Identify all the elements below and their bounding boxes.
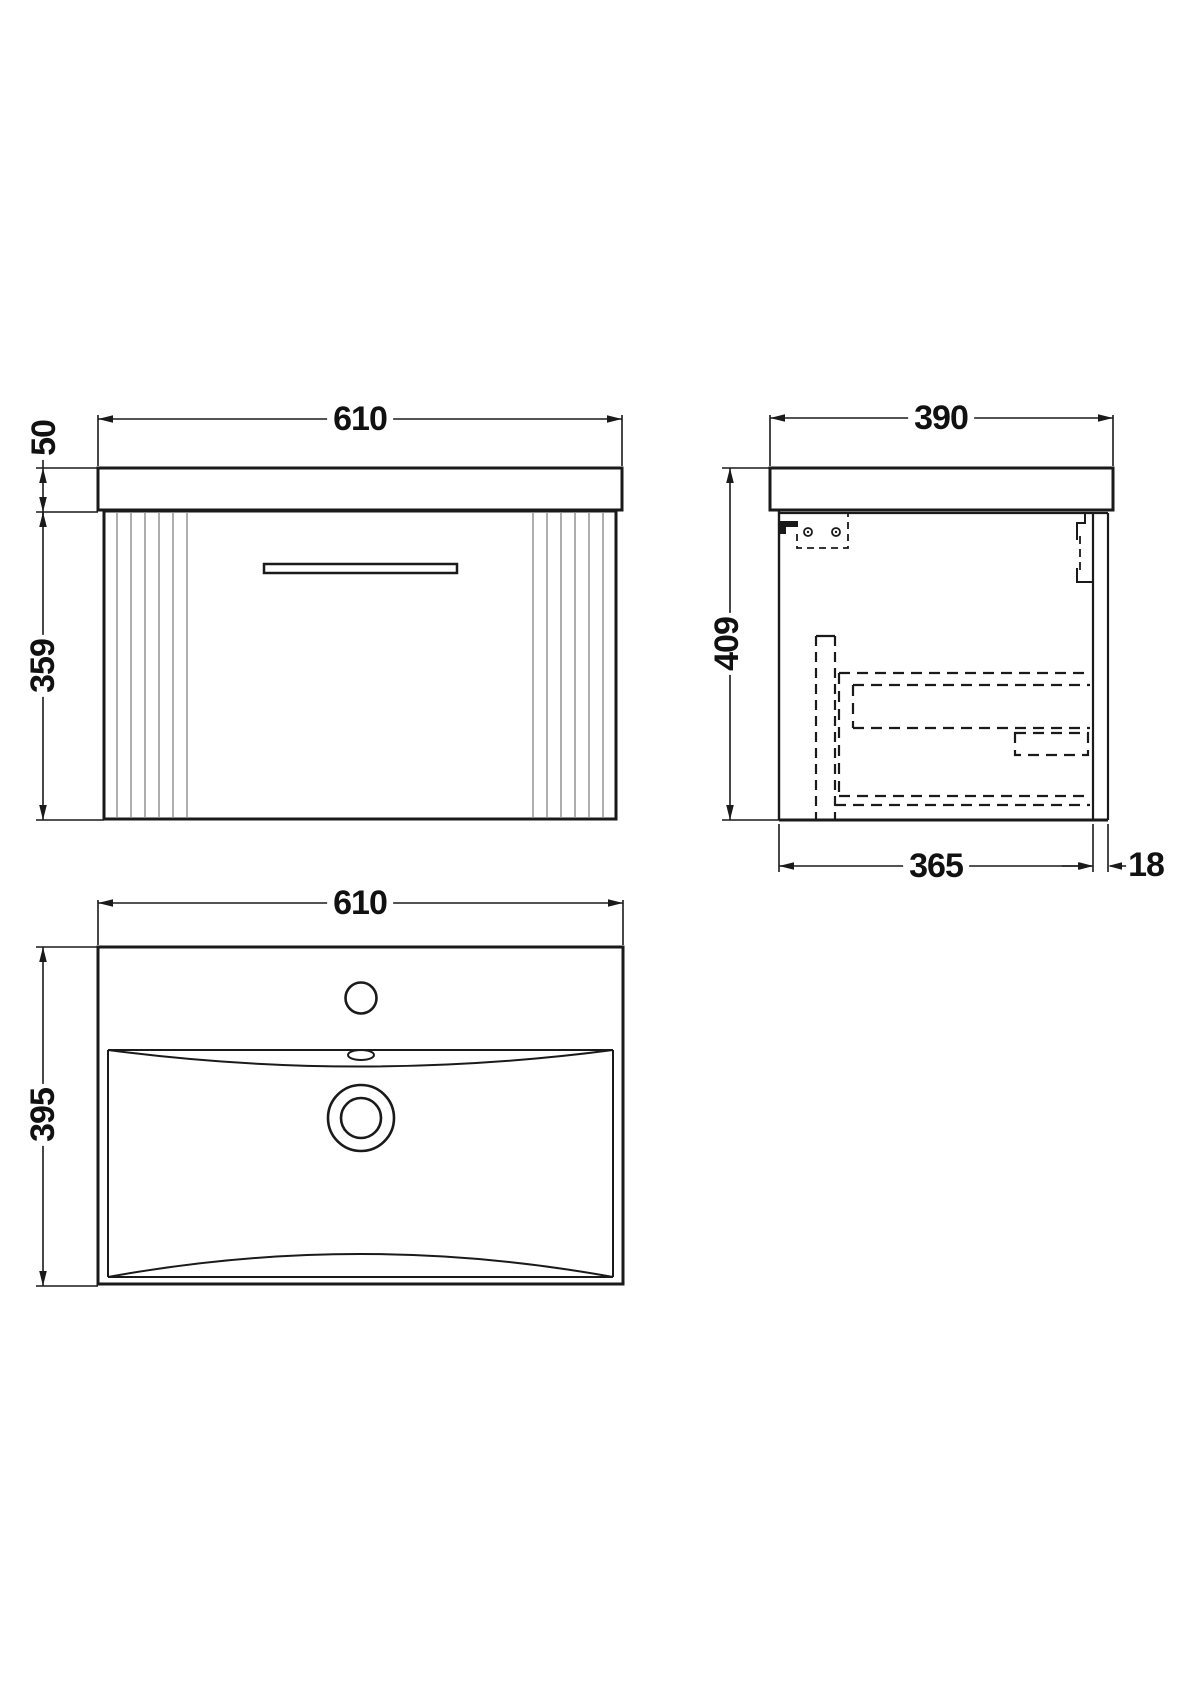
side-panel-thickness-dimension	[1062, 824, 1130, 872]
drain-hole	[328, 1085, 394, 1151]
side-back-panel-label: 18	[1126, 847, 1166, 883]
tap-hole	[346, 983, 377, 1014]
overflow-hole	[348, 1050, 374, 1060]
front-worktop-dimension	[36, 456, 98, 519]
technical-drawing-page: 610 50 359 390 409 365 18 610 395	[0, 0, 1200, 1698]
side-worktop-outline	[770, 468, 1113, 510]
basin-outer-rim	[98, 947, 623, 1284]
front-view-drawing	[36, 415, 622, 820]
front-worktop-outline	[98, 468, 622, 510]
side-back-panel	[1093, 513, 1108, 820]
front-worktop-height-label: 50	[26, 416, 62, 460]
wall-bracket	[779, 513, 848, 548]
top-width-label: 610	[327, 885, 393, 921]
side-cabinet-outline	[779, 510, 1108, 820]
front-cabinet-height-label: 359	[25, 635, 61, 697]
front-fluting-lines	[117, 513, 603, 817]
side-view-drawing	[722, 414, 1130, 872]
side-depth-label: 390	[908, 400, 974, 436]
front-cabinet-outline	[104, 511, 616, 819]
drawer-runner-dashed	[835, 673, 1090, 805]
front-width-label: 610	[327, 401, 393, 437]
top-depth-label: 395	[25, 1084, 61, 1146]
drawer-back-support-dashed	[816, 636, 835, 820]
side-internal-depth-label: 365	[903, 848, 969, 884]
side-height-label: 409	[709, 613, 745, 675]
top-view-drawing	[36, 899, 623, 1286]
drawer-handle	[264, 564, 457, 573]
vanity-dimension-drawing	[0, 0, 1200, 1698]
rear-rail-bracket	[1077, 513, 1093, 582]
